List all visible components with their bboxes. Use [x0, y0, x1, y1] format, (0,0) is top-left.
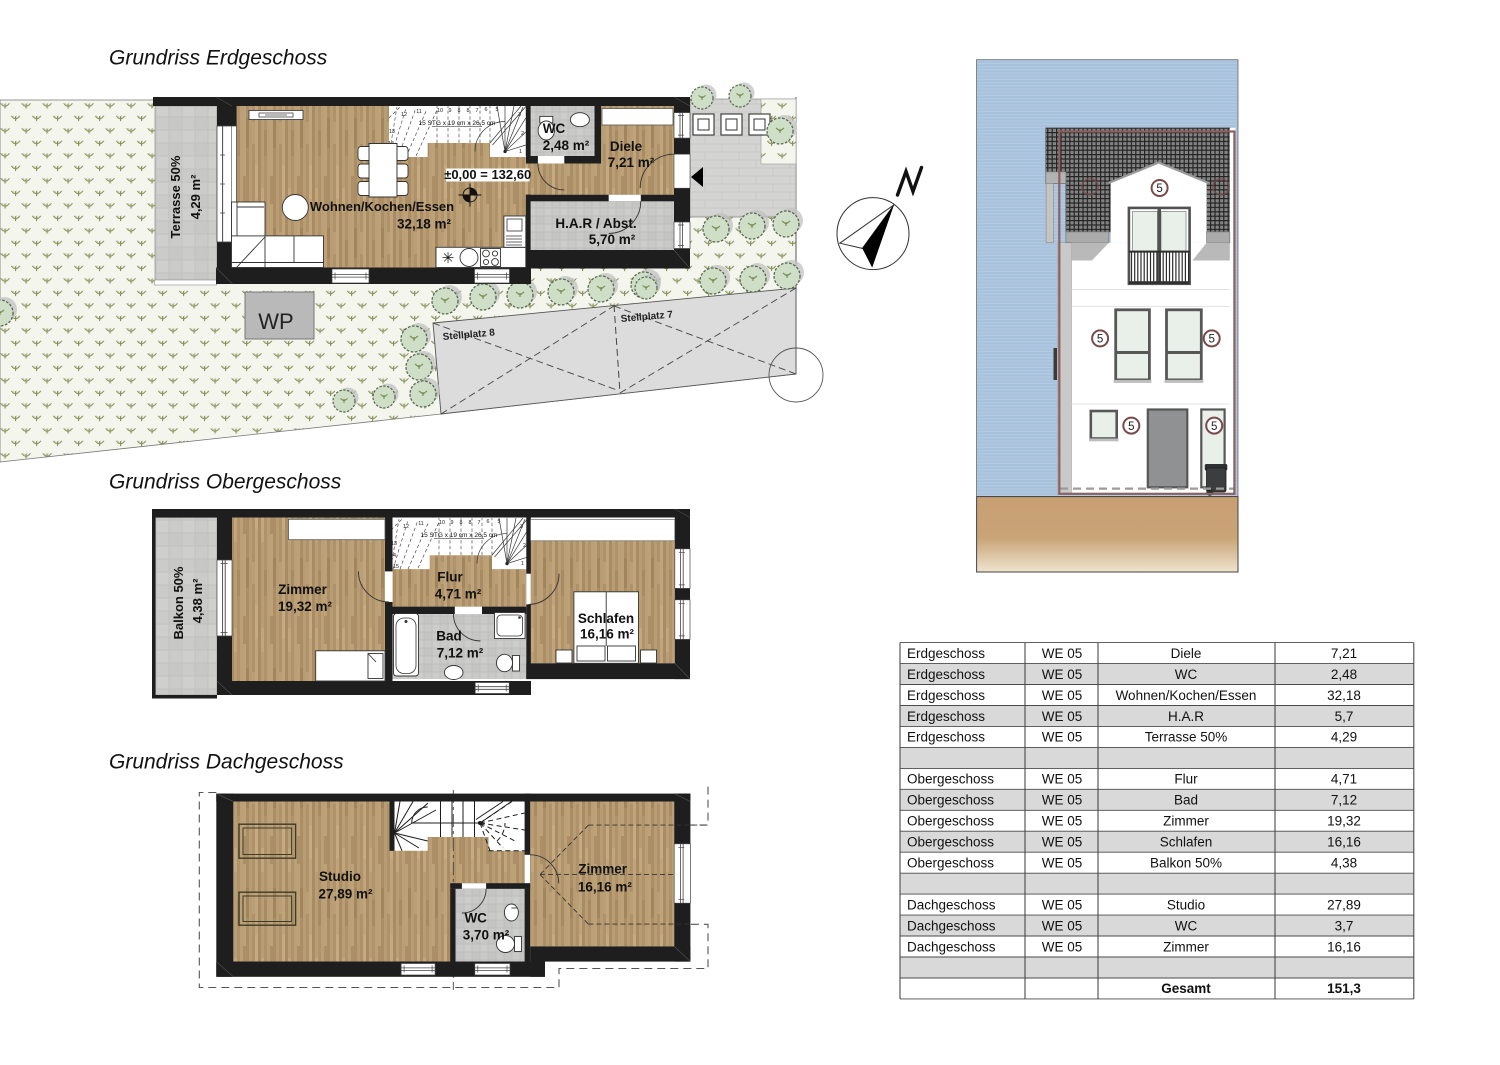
- svg-text:5: 5: [1156, 183, 1162, 195]
- svg-text:WE 05: WE 05: [1042, 939, 1083, 954]
- svg-text:4,71 m²: 4,71 m²: [435, 587, 482, 602]
- svg-text:WE 05: WE 05: [1042, 667, 1083, 682]
- svg-text:WE 05: WE 05: [1042, 646, 1083, 661]
- svg-text:H.A.R / Abst.: H.A.R / Abst.: [555, 216, 636, 231]
- svg-text:Dachgeschoss: Dachgeschoss: [907, 939, 996, 954]
- svg-text:7,12: 7,12: [1331, 793, 1357, 808]
- svg-text:5: 5: [1097, 334, 1103, 346]
- svg-text:4,38: 4,38: [1331, 856, 1357, 871]
- svg-text:16,16: 16,16: [1327, 835, 1361, 850]
- svg-text:Balkon 50%: Balkon 50%: [171, 566, 186, 639]
- svg-text:6: 6: [485, 107, 488, 113]
- svg-text:Erdgeschoss: Erdgeschoss: [907, 688, 985, 703]
- svg-text:Terrasse 50%: Terrasse 50%: [168, 155, 183, 238]
- svg-text:7,21: 7,21: [1331, 646, 1357, 661]
- svg-text:Erdgeschoss: Erdgeschoss: [907, 667, 985, 682]
- svg-text:4,71: 4,71: [1331, 772, 1357, 787]
- svg-text:19,32: 19,32: [1327, 814, 1361, 829]
- svg-text:Schlafen: Schlafen: [578, 611, 634, 626]
- svg-text:WE 05: WE 05: [1042, 688, 1083, 703]
- svg-text:WE 05: WE 05: [1042, 730, 1083, 745]
- svg-text:WE 05: WE 05: [1042, 856, 1083, 871]
- svg-text:5: 5: [1208, 334, 1214, 346]
- svg-text:12: 12: [401, 112, 407, 118]
- svg-text:Schlafen: Schlafen: [1160, 835, 1213, 850]
- svg-text:3: 3: [518, 112, 521, 118]
- svg-text:5: 5: [496, 107, 499, 113]
- svg-text:Erdgeschoss: Erdgeschoss: [907, 709, 985, 724]
- svg-text:Erdgeschoss: Erdgeschoss: [907, 646, 985, 661]
- svg-text:Obergeschoss: Obergeschoss: [907, 835, 994, 850]
- svg-text:WC: WC: [464, 911, 487, 926]
- svg-text:2: 2: [521, 131, 524, 137]
- svg-text:5,7: 5,7: [1335, 709, 1354, 724]
- svg-text:Terrasse 50%: Terrasse 50%: [1145, 730, 1228, 745]
- svg-text:13: 13: [389, 129, 395, 135]
- svg-text:Grundriss Dachgeschoss: Grundriss Dachgeschoss: [109, 751, 344, 774]
- svg-text:27,89: 27,89: [1327, 897, 1361, 912]
- svg-text:2,48 m²: 2,48 m²: [543, 138, 590, 153]
- svg-text:Wohnen/Kochen/Essen: Wohnen/Kochen/Essen: [1116, 688, 1257, 703]
- svg-text:5: 5: [1211, 421, 1217, 433]
- svg-text:Bad: Bad: [436, 629, 462, 644]
- svg-text:Grundriss Obergeschoss: Grundriss Obergeschoss: [109, 471, 342, 494]
- svg-text:Obergeschoss: Obergeschoss: [907, 793, 994, 808]
- svg-text:10: 10: [437, 108, 443, 114]
- svg-text:16,16 m²: 16,16 m²: [578, 880, 633, 895]
- svg-text:7: 7: [476, 108, 479, 114]
- svg-text:16,16 m²: 16,16 m²: [580, 627, 635, 642]
- svg-text:3,70 m²: 3,70 m²: [463, 928, 510, 943]
- svg-text:WE 05: WE 05: [1042, 772, 1083, 787]
- svg-text:Grundriss Erdgeschoss: Grundriss Erdgeschoss: [109, 47, 328, 70]
- svg-text:2,48: 2,48: [1331, 667, 1357, 682]
- svg-text:Dachgeschoss: Dachgeschoss: [907, 897, 996, 912]
- svg-text:WC: WC: [1175, 918, 1198, 933]
- svg-text:Zimmer: Zimmer: [1163, 939, 1209, 954]
- svg-text:Obergeschoss: Obergeschoss: [907, 772, 994, 787]
- svg-text:WE 05: WE 05: [1042, 897, 1083, 912]
- svg-text:1: 1: [519, 149, 522, 155]
- svg-text:7,12 m²: 7,12 m²: [437, 646, 484, 661]
- svg-text:5: 5: [1128, 421, 1134, 433]
- svg-text:4,29 m²: 4,29 m²: [188, 174, 203, 219]
- svg-text:Obergeschoss: Obergeschoss: [907, 856, 994, 871]
- svg-text:Zimmer: Zimmer: [278, 582, 328, 597]
- svg-text:Flur: Flur: [437, 570, 463, 585]
- svg-text:11: 11: [416, 109, 422, 115]
- svg-text:4,29: 4,29: [1331, 730, 1357, 745]
- svg-text:WC: WC: [543, 121, 566, 136]
- svg-text:Gesamt: Gesamt: [1161, 981, 1211, 996]
- svg-text:3,7: 3,7: [1335, 918, 1354, 933]
- svg-text:Dachgeschoss: Dachgeschoss: [907, 918, 996, 933]
- svg-text:8: 8: [467, 108, 470, 114]
- svg-text:H.A.R: H.A.R: [1168, 709, 1204, 724]
- svg-text:Balkon 50%: Balkon 50%: [1150, 856, 1222, 871]
- svg-text:Studio: Studio: [319, 869, 361, 884]
- svg-text:WE 05: WE 05: [1042, 709, 1083, 724]
- svg-text:9: 9: [449, 108, 452, 114]
- svg-text:151,3: 151,3: [1327, 981, 1361, 996]
- svg-text:±0,00 = 132,60: ±0,00 = 132,60: [444, 167, 531, 182]
- svg-text:WP: WP: [258, 309, 293, 334]
- svg-text:8: 8: [458, 108, 461, 114]
- svg-text:WE 05: WE 05: [1042, 918, 1083, 933]
- svg-text:Zimmer: Zimmer: [1163, 814, 1209, 829]
- svg-text:Diele: Diele: [1171, 646, 1202, 661]
- svg-text:Studio: Studio: [1167, 897, 1205, 912]
- svg-text:27,89 m²: 27,89 m²: [318, 887, 373, 902]
- svg-text:Bad: Bad: [1174, 793, 1198, 808]
- svg-text:Diele: Diele: [610, 139, 643, 154]
- svg-text:7,21 m²: 7,21 m²: [608, 155, 655, 170]
- svg-text:WC: WC: [1175, 667, 1198, 682]
- svg-text:WE 05: WE 05: [1042, 814, 1083, 829]
- svg-text:32,18: 32,18: [1327, 688, 1361, 703]
- svg-text:Zimmer: Zimmer: [578, 862, 628, 877]
- svg-text:15 STG x 19 cm x 26,5 cm: 15 STG x 19 cm x 26,5 cm: [419, 120, 496, 127]
- svg-text:✳: ✳: [442, 250, 455, 267]
- svg-text:Flur: Flur: [1174, 772, 1198, 787]
- svg-text:WE 05: WE 05: [1042, 835, 1083, 850]
- svg-text:16,16: 16,16: [1327, 939, 1361, 954]
- svg-text:Obergeschoss: Obergeschoss: [907, 814, 994, 829]
- svg-text:Erdgeschoss: Erdgeschoss: [907, 730, 985, 745]
- svg-text:4,38 m²: 4,38 m²: [190, 578, 205, 623]
- svg-text:32,18 m²: 32,18 m²: [397, 217, 452, 232]
- svg-text:5,70 m²: 5,70 m²: [589, 232, 636, 247]
- svg-text:WE 05: WE 05: [1042, 793, 1083, 808]
- svg-text:19,32 m²: 19,32 m²: [278, 599, 333, 614]
- svg-text:Wohnen/Kochen/Essen: Wohnen/Kochen/Essen: [310, 199, 454, 214]
